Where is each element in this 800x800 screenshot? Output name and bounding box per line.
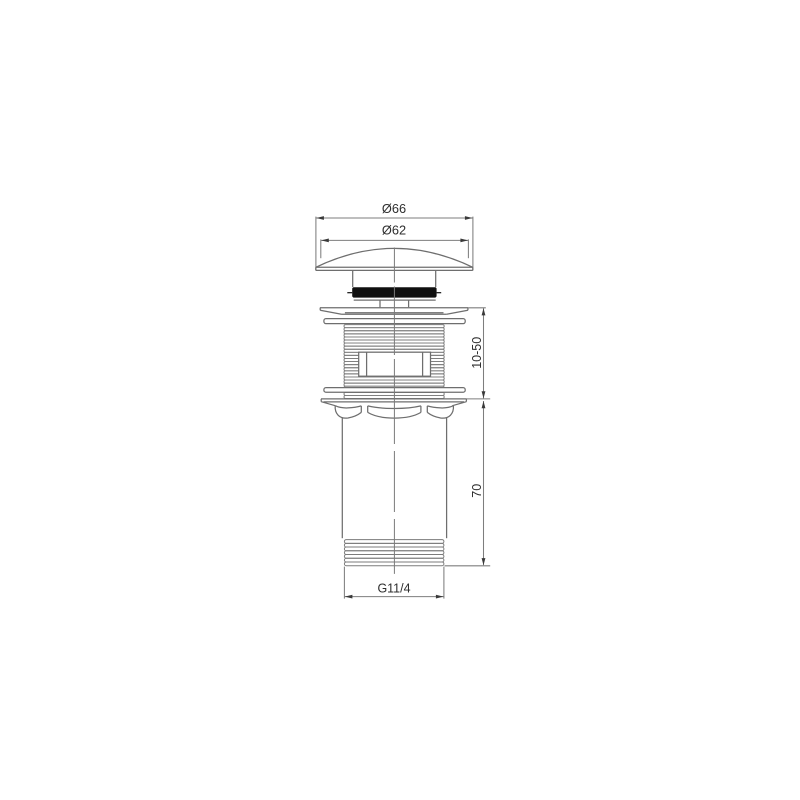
svg-text:10-50: 10-50	[470, 337, 484, 369]
svg-text:70: 70	[470, 484, 484, 498]
svg-text:Ø66: Ø66	[382, 201, 406, 216]
svg-text:Ø62: Ø62	[382, 223, 406, 238]
svg-text:G11/4: G11/4	[377, 582, 410, 596]
